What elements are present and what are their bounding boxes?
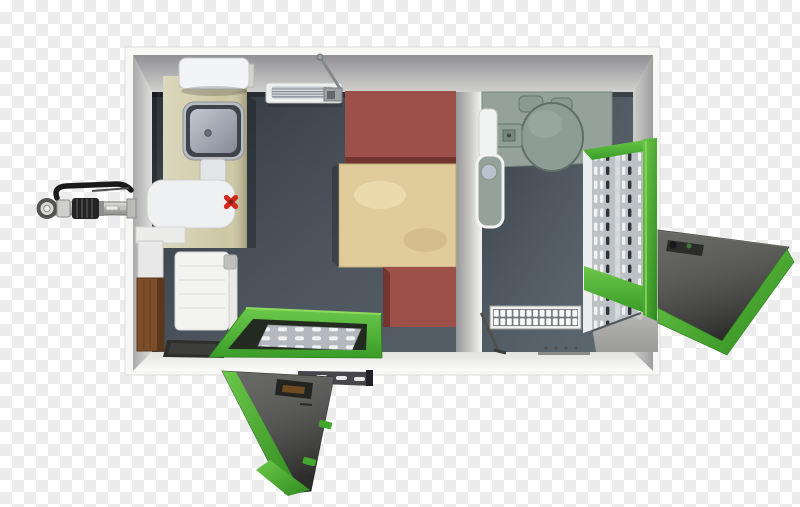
bench-seat-top-edge [345,157,456,164]
wooden-board [137,278,164,351]
bench-seat-bottom-edge [383,267,390,327]
stay-arm-pivot [317,54,323,60]
side-door-panel [658,230,794,355]
bellows-body [72,198,99,219]
sink-drain [205,130,211,136]
folding-table [339,164,456,267]
side-door-open [583,138,794,355]
sink-basin [190,109,237,153]
table-floor-shadow [332,164,339,267]
tow-hitch [39,184,137,219]
floor-mat-top [168,343,219,355]
bracket-end-tab [366,370,373,386]
refrigerator-shadow [181,86,247,96]
table-highlight-1 [354,181,406,209]
refrigerator [179,58,249,89]
tow-eye-hole [44,205,50,211]
storage-box [138,241,163,278]
hitch-rod [92,188,129,191]
transparency-checkerboard [0,0,800,507]
soap-dispenser [200,159,226,183]
front-door-panel [222,371,334,496]
valve-hub [229,200,234,205]
toilet-lid-highlight [528,110,562,138]
wall-radiator-panel [175,252,229,330]
handle-slot [300,404,312,405]
stay-arm-lock [327,91,335,99]
entry-door-open [209,308,382,496]
floor-vent [490,306,581,329]
wooden-board-edge [157,278,164,351]
scene-render [0,0,800,507]
grate-slots [258,325,361,350]
threshold-screw-2 [554,346,557,349]
hitch-bellows [72,198,99,219]
door-jamb [583,149,592,333]
floor-vent-grid [493,309,578,326]
door-grate-ramp [258,325,361,350]
threshold-screw-3 [564,346,567,349]
counter-floor-shadow [247,95,256,248]
access-panel [496,124,522,147]
side-handle-knob [670,242,677,249]
side-handle-mark [687,244,692,249]
side-door-frame-right [643,138,657,321]
hitch-coupling [57,200,70,217]
hitch-collar [99,201,104,216]
wall-cabinet [479,109,497,158]
ceiling-radiator-shadow [268,103,342,107]
hitch-mount-plate [127,199,136,218]
wall-radiator [175,252,237,332]
bracket-slot-3 [354,377,365,381]
water-heater [147,180,235,228]
table-shade-1 [403,228,447,252]
hitch-label-plate [106,206,118,210]
urinal [477,155,503,227]
radiator-valve-head [224,255,236,269]
bench-seat-bottom [383,267,456,327]
ceiling-radiator-grille [272,87,332,98]
bracket-slot-2 [336,376,347,380]
bench-seat-top [345,91,456,164]
kitchen-sink [183,102,244,160]
access-panel-button [507,134,511,138]
threshold-screw-1 [544,346,547,349]
threshold-screw-4 [574,346,577,349]
threshold-bar [538,352,590,355]
urinal-flush [481,164,497,180]
hitch-mark [120,206,126,210]
